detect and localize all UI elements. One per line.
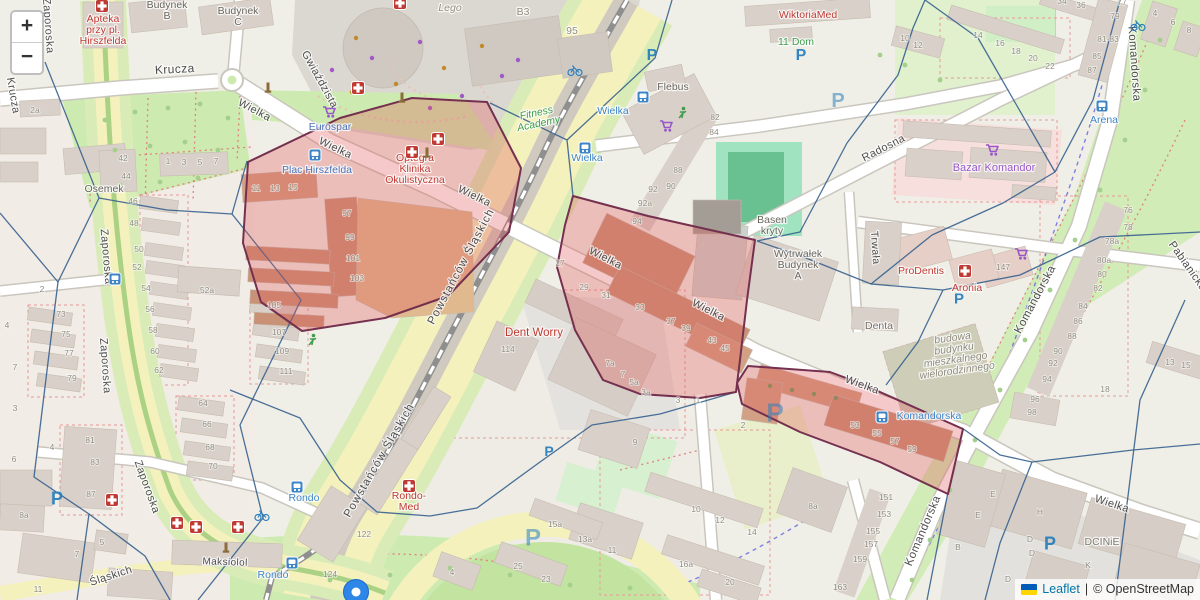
house-number: 79 xyxy=(1110,11,1120,21)
bus-icon-window xyxy=(582,145,589,150)
monument-column xyxy=(426,148,429,156)
medical-icon-cross-h xyxy=(353,86,362,89)
bus-icon-wheel xyxy=(289,565,291,567)
poi-label-line: DCINiE xyxy=(1084,536,1119,548)
house-number: 86 xyxy=(1073,316,1083,326)
house-number: 90 xyxy=(1053,346,1063,356)
monument-base xyxy=(265,91,271,93)
house-number: 57 xyxy=(890,436,900,446)
medical-cross-icon xyxy=(96,0,109,13)
house-number: 7 xyxy=(75,549,80,559)
house-number: 85 xyxy=(1092,51,1102,61)
bus-icon-window xyxy=(640,94,647,99)
medical-cross-icon xyxy=(959,265,972,278)
house-number: 8 xyxy=(1187,25,1192,35)
medical-icon-cross-h xyxy=(97,4,106,7)
house-number: 15 xyxy=(1181,360,1191,370)
house-number: 58 xyxy=(148,325,158,335)
house-number: 13a xyxy=(578,534,592,544)
osm-attribution-link[interactable]: © OpenStreetMap xyxy=(1093,581,1194,598)
poi-label-line: A xyxy=(794,270,801,282)
house-number: 84 xyxy=(1078,301,1088,311)
poi-label-line: Bazar Komandor xyxy=(953,162,1036,174)
leaflet-map[interactable]: KruczaKruczaWielkaWielkaWielkaWielkaWiel… xyxy=(0,0,1200,600)
bus-stop-icon xyxy=(309,149,321,161)
bus-icon-window xyxy=(289,560,296,565)
medical-icon-cross-h xyxy=(233,525,242,528)
poi-label: B3 xyxy=(517,6,530,18)
runner-head xyxy=(682,107,686,111)
medical-cross-icon xyxy=(171,517,184,530)
house-number: 82 xyxy=(1093,283,1103,293)
marker-layer xyxy=(344,580,369,600)
bus-icon-wheel xyxy=(116,281,118,283)
bus-icon-window xyxy=(879,414,886,419)
monument-column xyxy=(225,543,228,551)
house-number: 163 xyxy=(833,582,847,592)
bus-icon-wheel xyxy=(293,565,295,567)
bus-icon-wheel xyxy=(112,281,114,283)
house-number: 8a xyxy=(808,501,818,511)
house-number: 78 xyxy=(1123,222,1133,232)
house-number: 147 xyxy=(996,262,1010,272)
house-number: 122 xyxy=(357,529,371,539)
house-number: 6 xyxy=(1171,17,1176,27)
house-number: B xyxy=(955,542,961,552)
house-number: 5 xyxy=(100,537,105,547)
poi-label: Osemek xyxy=(84,183,124,195)
house-number: 80a xyxy=(1097,255,1111,265)
house-number: 159 xyxy=(853,554,867,564)
house-number: 98 xyxy=(1027,407,1037,417)
house-number: 16a xyxy=(679,559,693,569)
house-number: 12 xyxy=(715,515,725,525)
medical-cross-icon xyxy=(232,521,245,534)
monument-column xyxy=(401,93,404,101)
medical-icon-cross-h xyxy=(433,137,442,140)
cart-wheel xyxy=(1019,257,1022,260)
bus-icon-wheel xyxy=(586,150,588,152)
house-number: 87 xyxy=(1087,65,1097,75)
poi-label: Flebus xyxy=(657,81,689,93)
house-number: 3 xyxy=(13,403,18,413)
house-number: D xyxy=(1029,548,1035,558)
cart-wheel xyxy=(331,115,334,118)
house-number: 114 xyxy=(501,344,515,354)
house-number: 5a xyxy=(629,377,639,387)
house-number: 11 xyxy=(252,183,261,193)
poi-label-line: 95 xyxy=(566,25,578,37)
bus-icon-wheel xyxy=(582,150,584,152)
house-number: 54 xyxy=(141,283,151,293)
house-number: 94 xyxy=(1042,374,1052,384)
house-number: 92a xyxy=(638,198,652,208)
cart-wheel xyxy=(327,115,330,118)
parking-icon: P xyxy=(647,47,658,64)
house-number: 5 xyxy=(198,157,203,167)
medical-cross-icon xyxy=(190,521,203,534)
house-number: 53 xyxy=(850,420,860,430)
house-number: 94 xyxy=(632,216,642,226)
medical-cross-icon xyxy=(406,146,419,159)
bus-stop-icon xyxy=(876,411,888,423)
bus-stop-icon xyxy=(291,481,303,493)
poi-label: Plac Hirszfelda xyxy=(282,164,352,176)
cart-wheel xyxy=(994,153,997,156)
house-number: 34 xyxy=(1057,0,1067,6)
house-number: 105 xyxy=(267,300,281,310)
house-number: 7 xyxy=(621,369,626,379)
house-number: 43 xyxy=(707,335,717,345)
medical-icon-cross-h xyxy=(191,525,200,528)
house-number: 55 xyxy=(872,428,882,438)
house-number: H xyxy=(1037,507,1043,517)
ukraine-flag-icon xyxy=(1021,584,1037,595)
medical-cross-icon xyxy=(106,494,119,507)
location-marker[interactable] xyxy=(344,580,369,600)
bus-icon-wheel xyxy=(879,419,881,421)
house-number: 109 xyxy=(275,346,289,356)
house-number: D xyxy=(1005,574,1011,584)
medical-icon-cross-h xyxy=(407,150,416,153)
house-number: 77 xyxy=(64,348,74,358)
house-number: 20 xyxy=(725,577,735,587)
map-canvas[interactable]: KruczaKruczaWielkaWielkaWielkaWielkaWiel… xyxy=(0,0,1200,600)
bus-stop-icon xyxy=(286,557,298,569)
bus-icon-wheel xyxy=(294,489,296,491)
house-number: 4 xyxy=(50,442,55,452)
bus-stop-icon xyxy=(109,273,121,285)
house-number: 46 xyxy=(128,196,138,206)
house-number: 14 xyxy=(747,527,757,537)
parking-icon: P xyxy=(766,397,783,427)
leaflet-attribution-link[interactable]: Leaflet xyxy=(1042,581,1080,598)
house-number: 153 xyxy=(877,509,891,519)
bus-icon-wheel xyxy=(1103,108,1105,110)
monument-base xyxy=(223,551,229,553)
house-number: 15 xyxy=(288,182,298,192)
house-number: 20 xyxy=(1028,53,1038,63)
zoom-control: + − xyxy=(10,10,44,75)
transit-stop-label: Arena xyxy=(1090,114,1118,126)
medical-cross-icon xyxy=(394,0,407,10)
house-number: E xyxy=(975,510,981,520)
house-number: 9 xyxy=(633,437,638,447)
house-number: 12 xyxy=(913,40,923,50)
marker-inner xyxy=(352,588,361,597)
house-number: 59 xyxy=(907,444,917,454)
house-number: 11 xyxy=(34,584,43,594)
house-number: 82 xyxy=(710,112,720,122)
house-number: 111 xyxy=(280,366,293,376)
house-number: 7 xyxy=(214,156,219,166)
monument-base xyxy=(399,101,405,103)
house-number: 96 xyxy=(1030,394,1040,404)
house-number: 80 xyxy=(1097,269,1107,279)
attribution-separator: | xyxy=(1085,581,1088,598)
parking-icon: P xyxy=(831,90,844,112)
cart-wheel xyxy=(668,129,671,132)
house-number: 56 xyxy=(145,304,155,314)
house-number: K xyxy=(1085,560,1091,570)
poi-label-line: Osemek xyxy=(84,183,124,195)
house-number: 1 xyxy=(696,395,701,405)
house-number: 18 xyxy=(1011,46,1021,56)
house-number: 103 xyxy=(350,273,364,283)
poi-label-line: Eurospar xyxy=(309,121,352,133)
house-number: 60 xyxy=(150,346,160,356)
house-number: 3 xyxy=(182,157,187,167)
house-number: 22 xyxy=(1045,61,1055,71)
medical-icon-cross-h xyxy=(404,484,413,487)
house-number: 76 xyxy=(1123,205,1133,215)
house-number: 77 xyxy=(1117,0,1127,7)
poi-label: 95 xyxy=(566,25,578,37)
house-number: 97 xyxy=(342,208,352,218)
house-number: 3 xyxy=(676,395,681,405)
house-number: 42 xyxy=(118,153,128,163)
bus-icon-wheel xyxy=(644,99,646,101)
house-number: 1 xyxy=(166,156,171,166)
house-number: 31 xyxy=(601,290,611,300)
poi-label-line: Denta xyxy=(865,320,893,332)
house-number: 13 xyxy=(1165,357,1175,367)
house-number: 37 xyxy=(666,316,676,326)
bus-icon-wheel xyxy=(316,157,318,159)
medical-icon-cross-h xyxy=(960,269,969,272)
medical-icon-cross-h xyxy=(172,521,181,524)
bus-stop-icon xyxy=(579,142,591,154)
house-number: 151 xyxy=(879,492,893,502)
parking-icon: P xyxy=(796,47,807,64)
monument-column xyxy=(267,83,270,91)
house-number: 73 xyxy=(56,309,66,319)
poi-label-line: B xyxy=(163,10,170,22)
house-number: 7 xyxy=(13,362,18,372)
bus-icon-window xyxy=(112,276,119,281)
house-number: 79 xyxy=(67,373,77,383)
house-number: 92 xyxy=(1048,358,1058,368)
parking-icon: P xyxy=(525,525,541,552)
bus-icon-window xyxy=(312,152,319,157)
poi-label: Dent Worry xyxy=(505,327,563,339)
house-number: 75 xyxy=(61,329,71,339)
house-number: 23 xyxy=(541,574,551,584)
cart-wheel xyxy=(990,153,993,156)
house-number: 11 xyxy=(608,545,617,555)
house-number: 155 xyxy=(866,526,880,536)
bus-icon-window xyxy=(1099,103,1106,108)
bus-stop-icon xyxy=(637,91,649,103)
house-number: 4 xyxy=(450,567,455,577)
house-number: 90 xyxy=(666,181,676,191)
house-number: 2 xyxy=(741,420,746,430)
house-number: 107 xyxy=(272,327,286,337)
house-number: 8a xyxy=(19,510,29,520)
runner-head xyxy=(312,334,316,338)
house-number: 99 xyxy=(345,232,355,242)
transit-stop-label: Wielka xyxy=(597,105,629,117)
house-number: 39 xyxy=(681,323,691,333)
transit-stop-label: Rondo xyxy=(258,569,289,581)
house-number: 18 xyxy=(1100,384,1110,394)
house-number: 7a xyxy=(605,358,615,368)
parking-icon: P xyxy=(954,290,964,307)
house-number: 10 xyxy=(691,504,701,514)
house-number: 48 xyxy=(129,218,139,228)
house-number: 50 xyxy=(134,244,144,254)
parking-icon: P xyxy=(51,488,63,508)
poi-label-line: WiktoriaMed xyxy=(779,9,838,21)
house-number: 88 xyxy=(673,165,683,175)
parking-icon: P xyxy=(1044,533,1056,553)
house-number: 87 xyxy=(86,489,96,499)
poi-label: Lego xyxy=(438,2,462,14)
house-number: 64 xyxy=(198,398,208,408)
house-number: 14 xyxy=(973,30,983,40)
house-number: 2a xyxy=(30,105,40,115)
bus-stop-icon xyxy=(1096,100,1108,112)
monument-base xyxy=(424,156,430,158)
poi-label-line: B3 xyxy=(517,6,530,18)
bus-icon-wheel xyxy=(1099,108,1101,110)
medical-cross-icon xyxy=(352,82,365,95)
medical-cross-icon xyxy=(432,133,445,146)
bus-icon-window xyxy=(294,484,301,489)
poi-label: ProDentis xyxy=(898,265,944,277)
house-number: 66 xyxy=(202,419,212,429)
house-number: E xyxy=(990,489,996,499)
poi-label-line: kryty xyxy=(761,225,784,237)
poi-label-line: Hirszfelda xyxy=(80,35,127,47)
house-number: D xyxy=(1027,534,1033,544)
house-number: 16 xyxy=(995,38,1005,48)
poi-label-line: Flebus xyxy=(657,81,689,93)
street-label: Trwała xyxy=(868,231,882,265)
transit-stop-label: Komandorska xyxy=(897,410,962,422)
poi-label: Eurospar xyxy=(309,121,352,133)
medical-icon-cross-h xyxy=(107,498,116,501)
house-number: 3a xyxy=(641,387,651,397)
medical-icon-cross-h xyxy=(395,1,404,4)
poi-label-line: ProDentis xyxy=(898,265,944,277)
poi-label-line: C xyxy=(234,16,242,28)
house-number: 4 xyxy=(1153,8,1158,18)
house-number: 2 xyxy=(40,284,45,294)
transit-stop-label: Rondo xyxy=(289,492,320,504)
house-number: 62 xyxy=(154,365,164,375)
house-number: 25 xyxy=(513,561,523,571)
poi-label-line: Okulistyczna xyxy=(385,174,445,186)
house-number: 33 xyxy=(635,302,645,312)
zoom-out-button[interactable]: − xyxy=(12,43,42,73)
house-number: 29 xyxy=(579,282,589,292)
poi-label: DCINiE xyxy=(1084,536,1119,548)
house-number: 27 xyxy=(555,258,565,268)
house-number: 83 xyxy=(90,457,100,467)
house-number: 45 xyxy=(720,343,730,353)
medical-cross-icon xyxy=(403,480,416,493)
cart-wheel xyxy=(664,129,667,132)
house-number: 10 xyxy=(900,33,910,43)
house-number: 81 xyxy=(85,435,95,445)
house-number: 88 xyxy=(1067,331,1077,341)
parking-icon: P xyxy=(544,443,553,459)
poi-label-line: Dent Worry xyxy=(505,327,563,339)
house-number: 92 xyxy=(648,184,658,194)
house-number: 81-83 xyxy=(1097,34,1119,44)
house-number: 157 xyxy=(864,539,878,549)
bus-icon-wheel xyxy=(312,157,314,159)
house-number: 52a xyxy=(200,285,214,295)
house-number: 70 xyxy=(208,461,218,471)
house-number: 13 xyxy=(270,183,280,193)
house-number: 101 xyxy=(346,253,360,263)
poi-label: Denta xyxy=(865,320,893,332)
house-number: 44 xyxy=(121,171,131,181)
house-number: 6 xyxy=(12,454,17,464)
house-number: 84 xyxy=(709,127,719,137)
bus-icon-wheel xyxy=(883,419,885,421)
house-number: 124 xyxy=(323,569,337,579)
house-number: 4 xyxy=(5,320,10,330)
poi-label-line: Plac Hirszfelda xyxy=(282,164,352,176)
poi-label-line: Lego xyxy=(438,2,462,14)
attribution-bar: Leaflet | © OpenStreetMap xyxy=(1015,579,1200,600)
street-label: Krucza xyxy=(155,61,195,77)
poi-label: WiktoriaMed xyxy=(779,9,838,21)
house-number: 15a xyxy=(548,519,562,529)
zoom-in-button[interactable]: + xyxy=(12,12,42,43)
house-number: 36 xyxy=(1076,0,1086,10)
street-label: Maksiolol xyxy=(202,556,248,569)
bus-icon-wheel xyxy=(640,99,642,101)
cart-wheel xyxy=(1023,257,1026,260)
poi-label-line: Med xyxy=(399,501,420,513)
house-number: 78a xyxy=(1105,236,1119,246)
poi-label: Basenkryty xyxy=(757,214,787,237)
house-number: 68 xyxy=(205,442,215,452)
house-number: 52 xyxy=(132,262,142,272)
bus-icon-wheel xyxy=(298,489,300,491)
poi-label: Bazar Komandor xyxy=(953,162,1036,174)
